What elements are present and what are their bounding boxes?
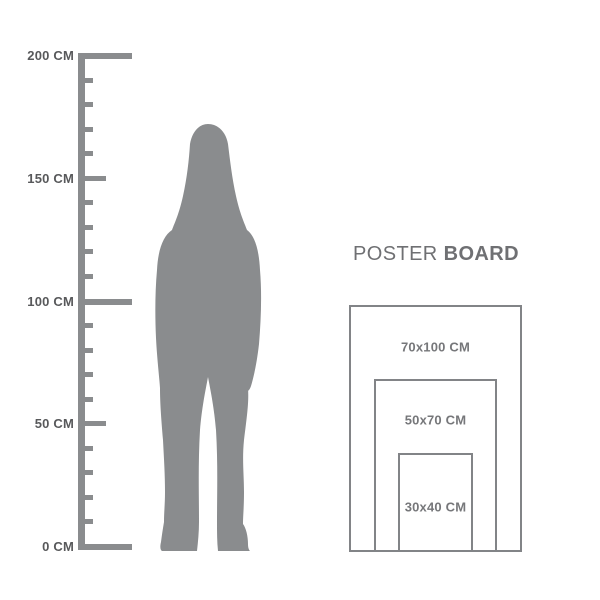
ruler-tick [78, 323, 93, 328]
size-guide-diagram: 200 CM150 CM100 CM50 CM0 CM POSTER BOARD… [0, 0, 600, 600]
ruler-tick [78, 397, 93, 402]
ruler-label: 150 CM [14, 171, 74, 187]
ruler-tick [78, 470, 93, 475]
poster-board-title-regular: POSTER [353, 243, 438, 265]
ruler-tick [78, 544, 132, 550]
size-box-label: 50x70 CM [376, 413, 496, 428]
ruler-label: 200 CM [14, 48, 74, 64]
ruler-tick [78, 446, 93, 451]
ruler-tick [78, 348, 93, 353]
poster-board-title-bold: BOARD [444, 243, 519, 265]
ruler-tick [78, 78, 93, 83]
size-box: 30x40 CM [398, 453, 472, 552]
ruler-tick [78, 225, 93, 230]
ruler-tick [78, 421, 106, 426]
ruler-tick [78, 519, 93, 524]
woman-silhouette [148, 124, 272, 552]
ruler-label: 100 CM [14, 294, 74, 310]
ruler-tick [78, 176, 106, 181]
ruler-tick [78, 127, 93, 132]
ruler-label: 50 CM [14, 416, 74, 432]
ruler-tick [78, 151, 93, 156]
size-box-label: 30x40 CM [400, 500, 470, 515]
poster-board-title: POSTER BOARD [336, 243, 536, 266]
ruler-tick [78, 249, 93, 254]
size-box-label: 70x100 CM [351, 340, 520, 355]
ruler-tick [78, 495, 93, 500]
ruler-tick [78, 372, 93, 377]
ruler-tick [78, 102, 93, 107]
woman-silhouette-path [155, 124, 261, 551]
ruler-tick [78, 53, 132, 59]
ruler-tick [78, 200, 93, 205]
ruler-tick [78, 299, 132, 305]
ruler-label: 0 CM [14, 539, 74, 555]
ruler-tick [78, 274, 93, 279]
